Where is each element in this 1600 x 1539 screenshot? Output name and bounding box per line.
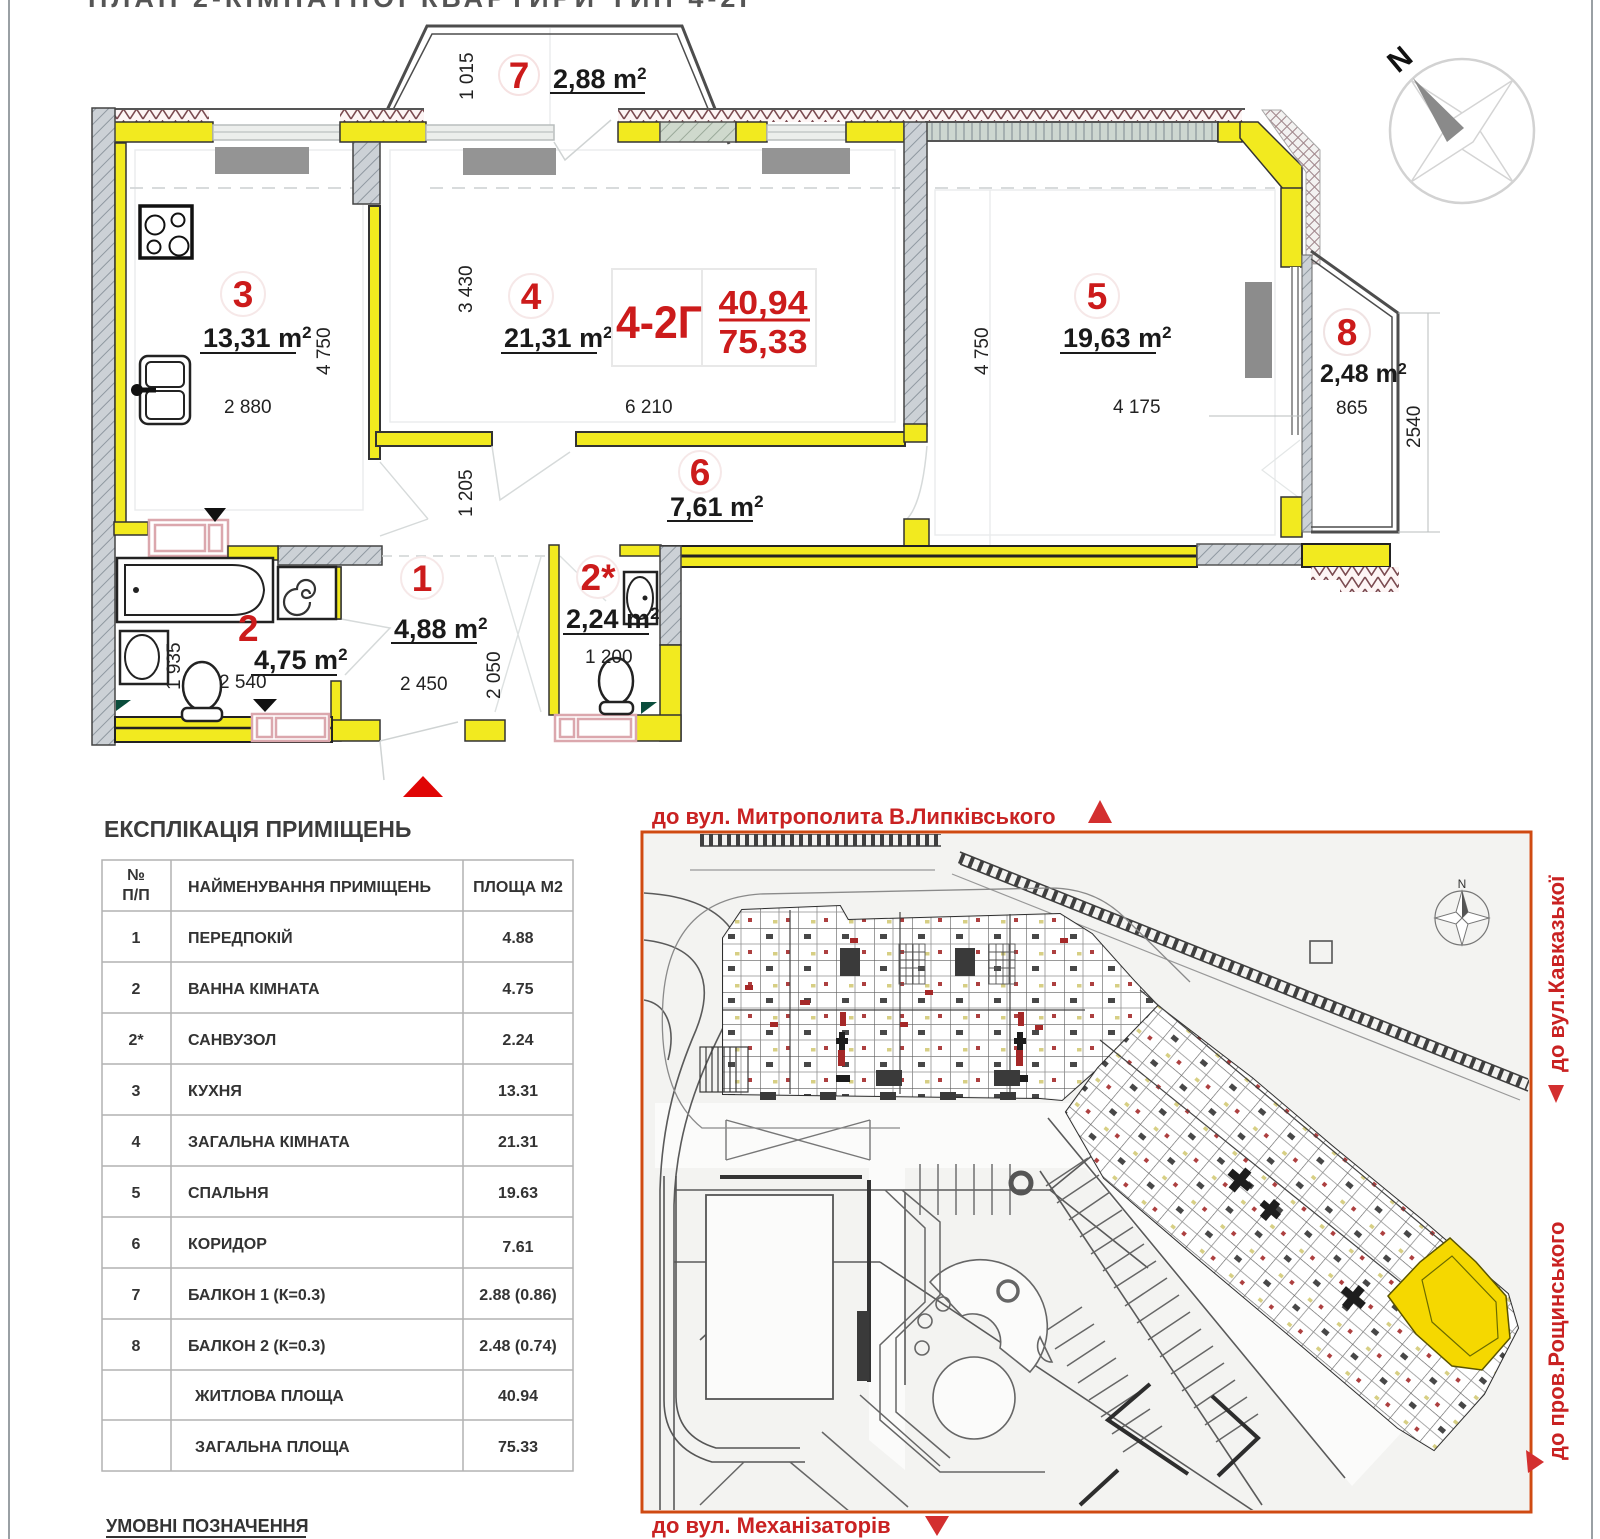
- svg-text:19,63 m2: 19,63 m2: [1063, 323, 1172, 353]
- svg-text:2.88 (0.86): 2.88 (0.86): [479, 1287, 556, 1304]
- svg-text:21.31: 21.31: [498, 1134, 538, 1151]
- svg-text:19.63: 19.63: [498, 1185, 538, 1202]
- svg-text:№: №: [127, 867, 145, 884]
- svg-text:ПЕРЕДПОКІЙ: ПЕРЕДПОКІЙ: [188, 928, 293, 947]
- svg-text:ЖИТЛОВА ПЛОЩА: ЖИТЛОВА ПЛОЩА: [194, 1388, 344, 1405]
- svg-text:7: 7: [509, 55, 530, 96]
- svg-text:до вул. Механізаторів: до вул. Механізаторів: [652, 1513, 891, 1538]
- svg-text:до вул.Кавказької: до вул.Кавказької: [1544, 875, 1569, 1072]
- svg-text:5: 5: [132, 1185, 141, 1202]
- svg-text:1: 1: [412, 558, 433, 599]
- svg-text:21,31 m2: 21,31 m2: [504, 323, 613, 353]
- svg-text:2,48 m2: 2,48 m2: [1320, 360, 1407, 388]
- svg-text:УМОВНІ ПОЗНАЧЕННЯ: УМОВНІ ПОЗНАЧЕННЯ: [106, 1516, 309, 1536]
- svg-text:1 200: 1 200: [585, 647, 633, 668]
- svg-text:2*: 2*: [128, 1032, 144, 1049]
- svg-text:2 050: 2 050: [484, 651, 505, 699]
- svg-text:75.33: 75.33: [498, 1439, 538, 1456]
- svg-text:7: 7: [132, 1287, 141, 1304]
- svg-text:4: 4: [521, 276, 542, 317]
- svg-text:2: 2: [238, 608, 259, 649]
- svg-text:4 750: 4 750: [972, 327, 993, 375]
- svg-text:П/П: П/П: [122, 887, 149, 904]
- svg-text:2 540: 2 540: [219, 672, 267, 693]
- svg-text:ВАННА КІМНАТА: ВАННА КІМНАТА: [188, 981, 320, 998]
- svg-text:БАЛКОН 2 (К=0.3): БАЛКОН 2 (К=0.3): [188, 1338, 325, 1355]
- svg-text:7,61 m2: 7,61 m2: [670, 492, 764, 522]
- svg-text:2.24: 2.24: [502, 1032, 533, 1049]
- svg-text:3: 3: [233, 274, 254, 315]
- svg-text:4,88 m2: 4,88 m2: [394, 614, 488, 644]
- svg-text:САНВУЗОЛ: САНВУЗОЛ: [188, 1032, 276, 1049]
- svg-text:5: 5: [1087, 276, 1108, 317]
- svg-text:1: 1: [132, 930, 141, 947]
- svg-text:4.88: 4.88: [502, 930, 533, 947]
- svg-text:6 210: 6 210: [625, 397, 673, 418]
- svg-text:3 430: 3 430: [456, 265, 477, 313]
- svg-text:40,94: 40,94: [719, 284, 809, 321]
- svg-text:40.94: 40.94: [498, 1388, 538, 1405]
- svg-text:4,75 m2: 4,75 m2: [254, 645, 348, 675]
- svg-text:2 880: 2 880: [224, 397, 272, 418]
- svg-text:2.48 (0.74): 2.48 (0.74): [479, 1338, 556, 1355]
- svg-text:2,88 m2: 2,88 m2: [553, 64, 647, 94]
- svg-text:4.75: 4.75: [502, 981, 533, 998]
- svg-text:КОРИДОР: КОРИДОР: [188, 1236, 267, 1253]
- svg-text:2: 2: [132, 981, 141, 998]
- svg-text:ЗАГАЛЬНА ПЛОЩА: ЗАГАЛЬНА ПЛОЩА: [195, 1439, 350, 1456]
- svg-text:6: 6: [132, 1236, 141, 1253]
- svg-text:75,33: 75,33: [719, 323, 808, 360]
- svg-text:1 205: 1 205: [456, 469, 477, 517]
- svg-text:до пров.Рощинського: до пров.Рощинського: [1544, 1222, 1569, 1461]
- svg-text:13.31: 13.31: [498, 1083, 538, 1100]
- svg-text:БАЛКОН 1 (К=0.3): БАЛКОН 1 (К=0.3): [188, 1287, 325, 1304]
- svg-text:3: 3: [132, 1083, 141, 1100]
- svg-text:2*: 2*: [581, 557, 617, 598]
- svg-text:СПАЛЬНЯ: СПАЛЬНЯ: [188, 1185, 269, 1202]
- svg-text:4: 4: [132, 1134, 141, 1151]
- svg-text:8: 8: [132, 1338, 141, 1355]
- svg-text:ЕКСПЛІКАЦІЯ ПРИМІЩЕНЬ: ЕКСПЛІКАЦІЯ ПРИМІЩЕНЬ: [104, 816, 411, 842]
- svg-text:N: N: [1458, 877, 1467, 891]
- svg-text:4 750: 4 750: [314, 327, 335, 375]
- svg-text:7.61: 7.61: [502, 1239, 533, 1256]
- svg-text:1 935: 1 935: [164, 642, 185, 690]
- svg-text:КУХНЯ: КУХНЯ: [188, 1083, 242, 1100]
- svg-text:4-2Г: 4-2Г: [616, 297, 702, 348]
- svg-text:до вул. Митрополита В.Липківсь: до вул. Митрополита В.Липківського: [652, 804, 1056, 829]
- svg-text:6: 6: [690, 452, 711, 493]
- svg-text:1 015: 1 015: [457, 52, 478, 100]
- svg-text:2,24 m2: 2,24 m2: [566, 604, 660, 634]
- svg-text:НАЙМЕНУВАННЯ ПРИМІЩЕНЬ: НАЙМЕНУВАННЯ ПРИМІЩЕНЬ: [188, 877, 431, 896]
- svg-text:2 450: 2 450: [400, 674, 448, 695]
- svg-text:13,31 m2: 13,31 m2: [203, 323, 312, 353]
- svg-text:ПЛАН 2-КІМНАТНОЇ КВАРТИРИ ТИП: ПЛАН 2-КІМНАТНОЇ КВАРТИРИ ТИП 4-2Г: [88, 0, 759, 13]
- svg-text:ПЛОЩА М2: ПЛОЩА М2: [473, 879, 563, 896]
- svg-text:8: 8: [1337, 312, 1358, 353]
- svg-text:865: 865: [1336, 398, 1368, 419]
- svg-text:ЗАГАЛЬНА КІМНАТА: ЗАГАЛЬНА КІМНАТА: [188, 1134, 350, 1151]
- svg-text:2540: 2540: [1404, 406, 1425, 448]
- svg-text:4 175: 4 175: [1113, 397, 1161, 418]
